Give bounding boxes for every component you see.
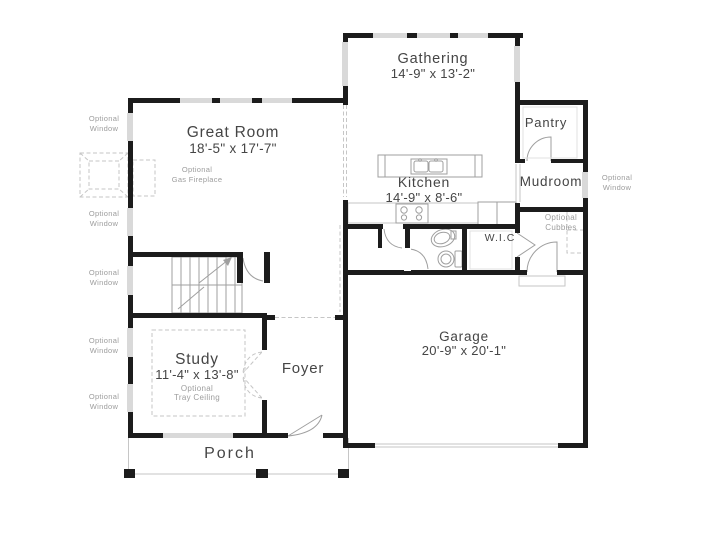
wall xyxy=(557,270,588,275)
kitchen-name: Kitchen xyxy=(354,175,494,191)
wall xyxy=(343,270,527,275)
fireplace-icon xyxy=(80,153,155,197)
garage-door xyxy=(375,444,558,447)
window xyxy=(417,33,450,38)
powder-door-gap xyxy=(404,248,411,271)
optional-cubbies-label: Optional Cubbies xyxy=(536,213,586,234)
study-note: Optional Tray Ceiling xyxy=(145,385,249,403)
optional-window-label-2: Optional Window xyxy=(78,209,130,229)
window xyxy=(262,98,292,103)
optional-window-label-3: Optional Window xyxy=(78,268,130,288)
gathering-dims: 14'-9" x 13'-2" xyxy=(363,67,503,82)
optional-window-label-6: Optional Window xyxy=(591,173,643,193)
wall xyxy=(515,257,520,275)
porch-post xyxy=(256,469,268,478)
kitchen-dims: 14'-9" x 8'-6" xyxy=(354,191,494,206)
wall xyxy=(343,270,348,448)
room-label-mudroom: Mudroom xyxy=(514,174,588,189)
refrigerator-icon xyxy=(478,202,516,225)
stair-direction-arrow xyxy=(223,257,232,266)
optional-window-label-5: Optional Window xyxy=(78,392,130,412)
porch-post xyxy=(124,469,135,478)
study-name: Study xyxy=(145,351,249,368)
stove-icon xyxy=(396,204,428,223)
wall xyxy=(128,433,163,438)
powder-sink-icon xyxy=(429,226,457,250)
room-label-kitchen: Kitchen 14'-9" x 8'-6" xyxy=(354,175,494,205)
room-label-great-room: Great Room 18'-5" x 17'-7" xyxy=(163,124,303,156)
kitchen-counter xyxy=(348,203,478,223)
optional-window-label-4: Optional Window xyxy=(78,336,130,356)
window xyxy=(514,46,520,82)
study-door-gap xyxy=(262,350,267,400)
room-label-porch: Porch xyxy=(193,445,267,463)
wall xyxy=(343,224,383,229)
wall xyxy=(515,207,588,212)
wall xyxy=(262,315,275,320)
wall xyxy=(378,224,382,248)
porch-name: Porch xyxy=(193,445,267,463)
window xyxy=(373,33,407,38)
wall xyxy=(558,443,588,448)
room-label-garage: Garage 20'-9" x 20'-1" xyxy=(392,329,536,359)
window xyxy=(163,433,233,438)
wall xyxy=(128,252,243,257)
optional-gas-fireplace-label: Optional Gas Fireplace xyxy=(157,165,237,185)
wall xyxy=(515,159,525,163)
garage-entry-door xyxy=(527,242,557,272)
window xyxy=(342,42,348,86)
optional-window-label-1: Optional Window xyxy=(78,114,130,134)
great-room-dims: 18'-5" x 17'-7" xyxy=(163,141,303,156)
wall xyxy=(462,224,467,275)
stair-hall-door xyxy=(243,258,263,281)
wall xyxy=(515,100,588,105)
room-label-pantry: Pantry xyxy=(514,116,578,131)
wall xyxy=(233,433,288,438)
front-door xyxy=(288,415,322,436)
wall xyxy=(237,252,243,283)
staircase xyxy=(172,257,242,313)
garage-step xyxy=(519,276,565,286)
wall xyxy=(551,159,588,163)
mudroom-name: Mudroom xyxy=(514,174,588,189)
foyer-name: Foyer xyxy=(272,361,334,378)
powder-door xyxy=(410,249,428,269)
room-label-foyer: Foyer xyxy=(272,361,334,378)
garage-dims: 20'-9" x 20'-1" xyxy=(392,344,536,359)
gathering-name: Gathering xyxy=(363,51,503,67)
porch-post xyxy=(338,469,349,478)
room-label-gathering: Gathering 14'-9" x 13'-2" xyxy=(363,51,503,82)
window xyxy=(458,33,488,38)
garage-name: Garage xyxy=(392,329,536,344)
study-dims: 11'-4" x 13'-8" xyxy=(145,368,249,383)
closet-door xyxy=(384,229,402,248)
wall xyxy=(343,200,348,270)
wall xyxy=(343,443,375,448)
room-label-wic: W.I.C xyxy=(477,233,523,245)
window xyxy=(220,98,252,103)
toilet-icon xyxy=(438,251,462,267)
wall xyxy=(128,313,267,318)
wall xyxy=(264,252,270,283)
pantry-name: Pantry xyxy=(514,116,578,131)
floor-plan: Gathering 14'-9" x 13'-2" Great Room 18'… xyxy=(0,0,720,540)
wic-name: W.I.C xyxy=(477,233,523,245)
room-label-study: Study 11'-4" x 13'-8" Optional Tray Ceil… xyxy=(145,351,249,403)
window xyxy=(180,98,212,103)
wall xyxy=(515,203,520,233)
pantry-door xyxy=(527,137,551,161)
great-room-name: Great Room xyxy=(163,124,303,141)
